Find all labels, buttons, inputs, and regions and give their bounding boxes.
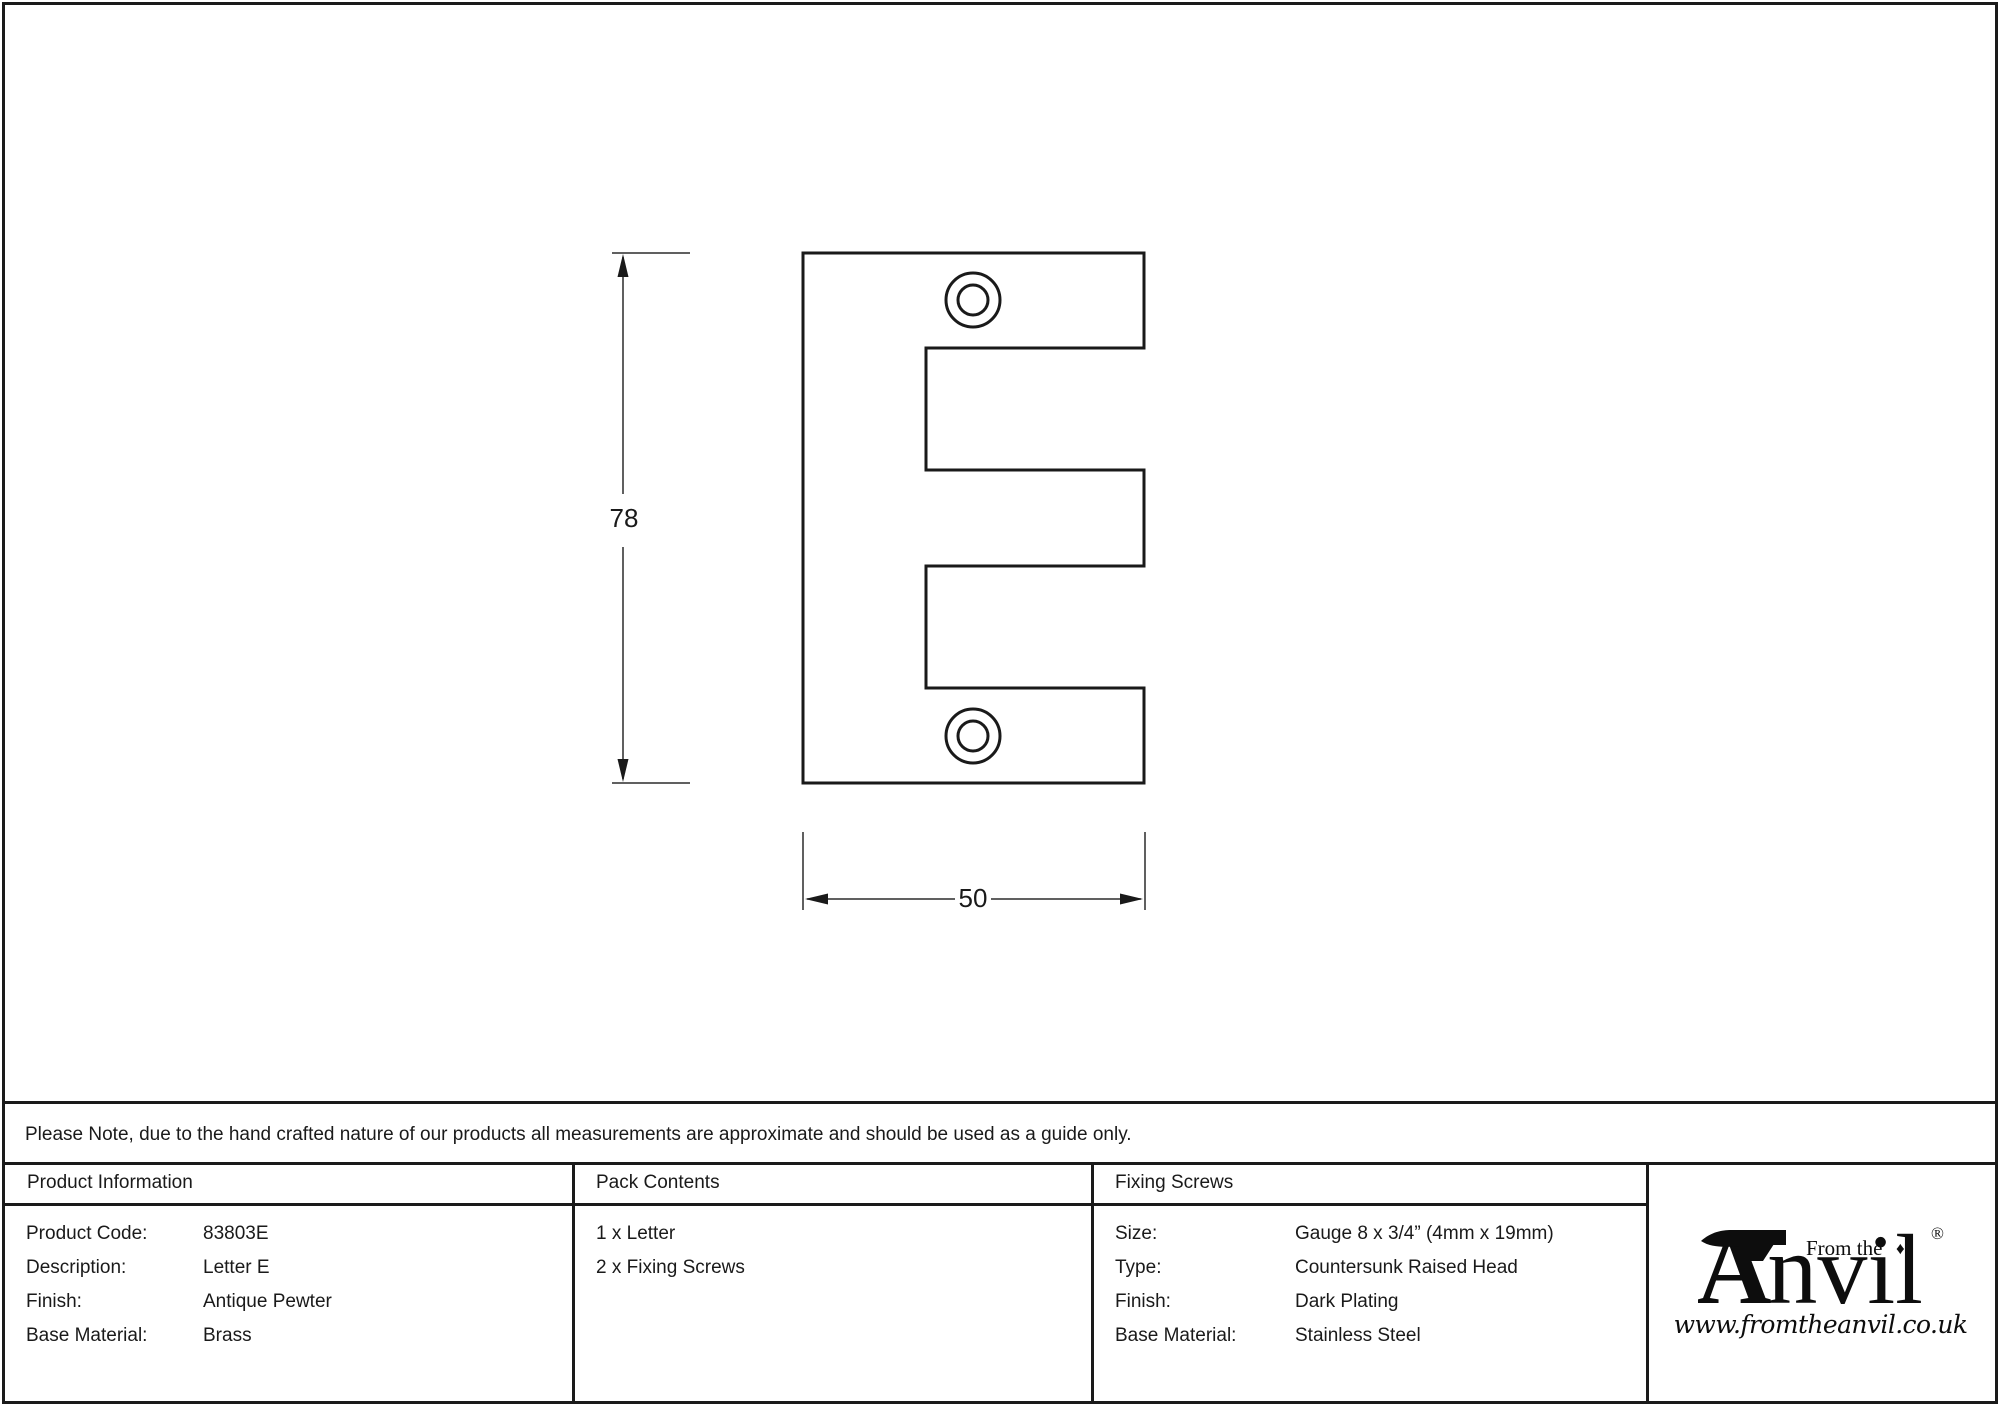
letter-e-outline bbox=[803, 253, 1144, 783]
table-row: Type:Countersunk Raised Head bbox=[1115, 1251, 1554, 1285]
table-row: Description:Letter E bbox=[26, 1251, 332, 1285]
table-top-border bbox=[2, 1162, 1998, 1165]
anvil-icon bbox=[1698, 1228, 1788, 1263]
row-label: Base Material: bbox=[26, 1319, 203, 1353]
brand-prefix: From the bbox=[1806, 1236, 1882, 1261]
row-value: Countersunk Raised Head bbox=[1295, 1257, 1518, 1278]
height-dimension: 78 bbox=[610, 253, 690, 783]
divider-pack-screws bbox=[1091, 1162, 1094, 1401]
header-bottom-border bbox=[2, 1203, 1649, 1206]
row-value: Dark Plating bbox=[1295, 1291, 1399, 1312]
list-item: 2 x Fixing Screws bbox=[596, 1251, 745, 1285]
arrow-left-icon bbox=[805, 894, 828, 905]
arrow-down-icon bbox=[618, 759, 629, 782]
row-label: Finish: bbox=[26, 1285, 203, 1319]
row-label: Description: bbox=[26, 1251, 203, 1285]
pack-contents-header: Pack Contents bbox=[596, 1172, 720, 1194]
list-item: 1 x Letter bbox=[596, 1217, 745, 1251]
row-label: Base Material: bbox=[1115, 1319, 1295, 1353]
table-row: Finish:Dark Plating bbox=[1115, 1285, 1554, 1319]
pack-contents-list: 1 x Letter 2 x Fixing Screws bbox=[596, 1217, 745, 1285]
note-text: Please Note, due to the hand crafted nat… bbox=[25, 1124, 1132, 1146]
datasheet-page: 78 50 Please Note, due to the hand craft… bbox=[0, 0, 2000, 1406]
divider-product-pack bbox=[572, 1162, 575, 1401]
row-value: Brass bbox=[203, 1325, 252, 1346]
product-information-rows: Product Code:83803E Description:Letter E… bbox=[26, 1217, 332, 1353]
technical-drawing: 78 50 bbox=[0, 0, 2000, 1103]
row-label: Product Code: bbox=[26, 1217, 203, 1251]
fixing-screws-rows: Size:Gauge 8 x 3/4” (4mm x 19mm) Type:Co… bbox=[1115, 1217, 1554, 1353]
arrow-right-icon bbox=[1120, 894, 1143, 905]
fixing-screws-header: Fixing Screws bbox=[1115, 1172, 1233, 1194]
row-value: Letter E bbox=[203, 1257, 270, 1278]
height-dimension-label: 78 bbox=[610, 503, 639, 533]
row-label: Finish: bbox=[1115, 1285, 1295, 1319]
row-value: Gauge 8 x 3/4” (4mm x 19mm) bbox=[1295, 1223, 1554, 1244]
brand-rest: nvil bbox=[1767, 1214, 1923, 1325]
diamond-icon: ♦ bbox=[1896, 1239, 1905, 1259]
registered-trademark-icon: ® bbox=[1931, 1224, 1944, 1244]
row-value: Antique Pewter bbox=[203, 1291, 332, 1312]
table-row: Size:Gauge 8 x 3/4” (4mm x 19mm) bbox=[1115, 1217, 1554, 1251]
table-row: Base Material:Stainless Steel bbox=[1115, 1319, 1554, 1353]
table-row: Base Material:Brass bbox=[26, 1319, 332, 1353]
width-dimension: 50 bbox=[803, 832, 1145, 913]
row-label: Size: bbox=[1115, 1217, 1295, 1251]
table-row: Product Code:83803E bbox=[26, 1217, 332, 1251]
arrow-up-icon bbox=[618, 254, 629, 277]
row-value: Stainless Steel bbox=[1295, 1325, 1421, 1346]
row-label: Type: bbox=[1115, 1251, 1295, 1285]
brand-website: www.fromtheanvil.co.uk bbox=[1647, 1310, 1994, 1339]
divider-screws-logo bbox=[1646, 1162, 1649, 1401]
width-dimension-label: 50 bbox=[959, 883, 988, 913]
table-row: Finish:Antique Pewter bbox=[26, 1285, 332, 1319]
note-row-top-border bbox=[2, 1101, 1998, 1104]
row-value: 83803E bbox=[203, 1223, 269, 1244]
product-information-header: Product Information bbox=[27, 1172, 193, 1194]
